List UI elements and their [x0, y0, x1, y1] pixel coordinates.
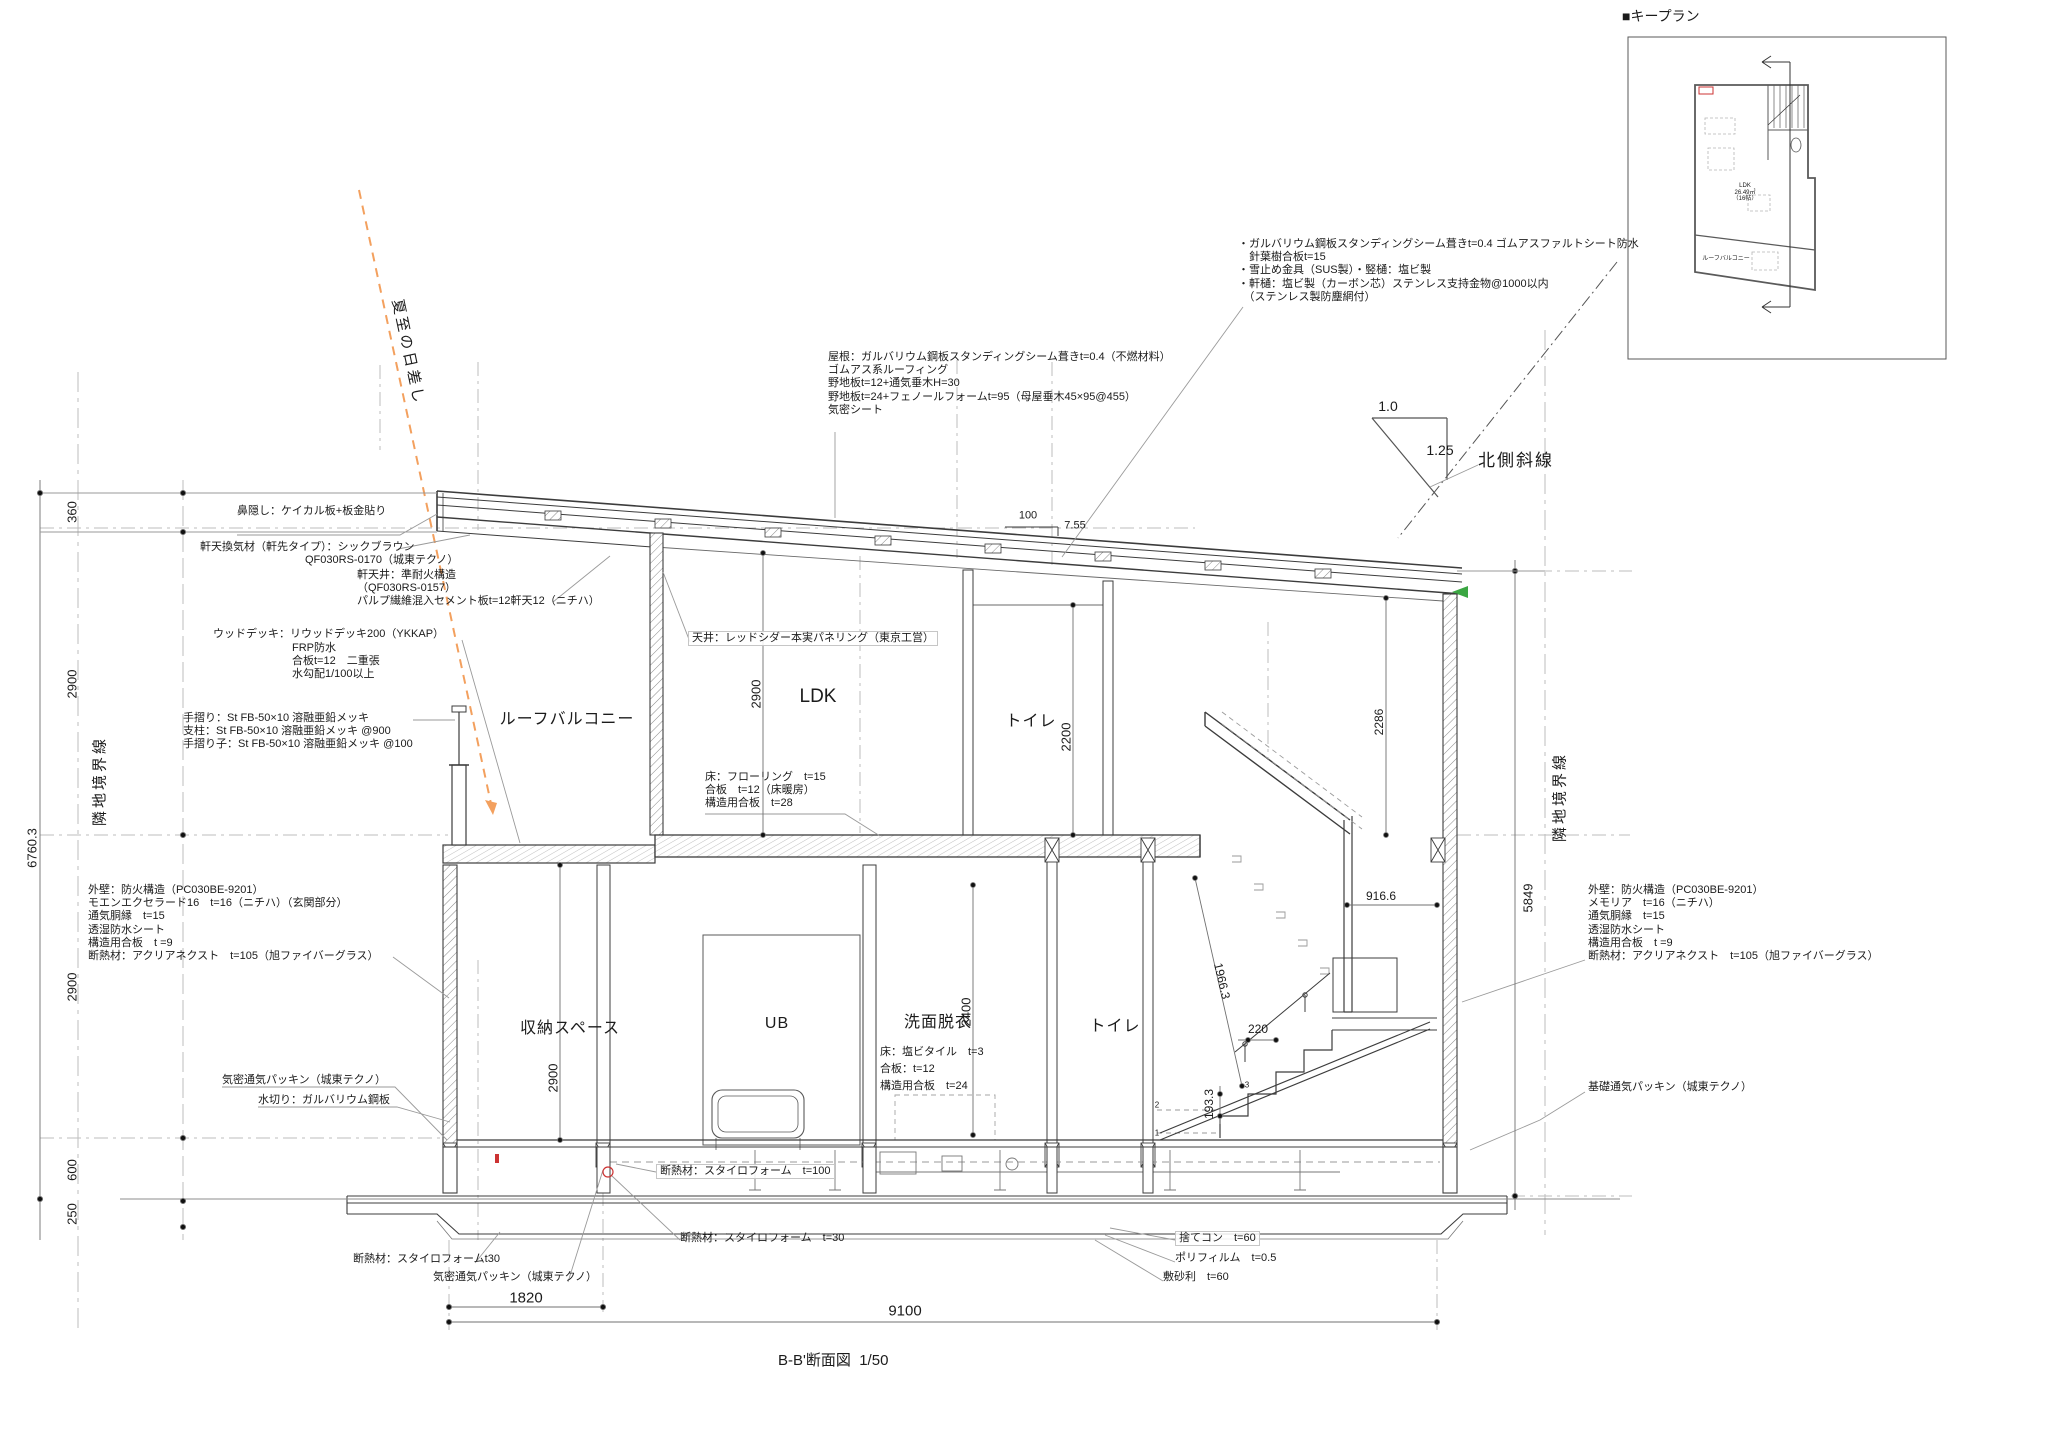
note-packing-lower: 気密通気パッキン（城東テクノ）: [433, 1271, 597, 1284]
step-number-2: 2: [1155, 1101, 1159, 1110]
dim-right-total: 5849: [1521, 884, 1536, 913]
dim-stair-rise: 193.3: [1202, 1089, 1216, 1119]
room-storage: 収納スペース: [520, 1014, 620, 1038]
slope-rise: 1.25: [1426, 442, 1453, 458]
note-foundation-packing: 基礎通気パッキン（城東テクノ）: [1588, 1081, 1752, 1094]
note-wood-deck-head: ウッドデッキ：リウッドデッキ200（YKKAP）: [213, 628, 444, 641]
foundation: [347, 1147, 1507, 1239]
roof-run: 100: [1019, 509, 1037, 522]
drawing-scale: 1/50: [859, 1352, 888, 1369]
note-floor-wet: 床：塩ビタイル t=3 合板：t=12 構造用合板 t=24: [880, 1044, 984, 1095]
note-fascia: 鼻隠し：ケイカル板+板金貼り: [237, 505, 386, 518]
dim-fascia: 360: [65, 501, 80, 523]
note-eave-soffit: 軒天井：準耐火構造 （QF030RS-0157） パルプ繊維混入セメント板t=1…: [357, 569, 600, 609]
step-number-1: 1: [1155, 1129, 1159, 1138]
dim-landing: 916.6: [1366, 889, 1396, 903]
note-wall-left: 外壁：防火構造（PC030BE-9201） モエンエクセラード16 t=16（ニ…: [88, 884, 379, 963]
note-insul-floor: 断熱材：スタイロフォーム t=100: [656, 1164, 835, 1179]
boundary-right-label: 隣地境界線: [1549, 752, 1570, 842]
dim-stair-run: 220: [1248, 1022, 1268, 1036]
keyplan-ldk-label: LDK 26.49㎡ （16帖）: [1733, 183, 1758, 203]
note-eaves-gutter: ・ガルバリウム鋼板スタンディングシーム葺きt=0.4 ゴムアスファルトシート防水…: [1238, 238, 1639, 304]
keyplan-balcony-label: ルーフバルコニー: [1702, 256, 1750, 263]
note-handrail: 手摺り：St FB-50×10 溶融亜鉛メッキ 支柱：St FB-50×10 溶…: [183, 712, 413, 752]
dim-left-total: 6760.3: [25, 828, 40, 868]
note-insul-slab: 断熱材：スタイロフォーム t=30: [680, 1232, 844, 1245]
note-ceiling: 天井：レッドシダー本実パネリング（東京工営）: [688, 631, 938, 646]
keyplan-title: ■キープラン: [1622, 6, 1700, 26]
leader-lines: [222, 307, 1585, 1282]
room-toilet-2f: トイレ: [1005, 707, 1056, 731]
section-drawing-sheet: ■キープラン B-B'断面図 1/50 LDK 26.49㎡ （16帖） ルーフ…: [0, 0, 2060, 1436]
note-wood-deck-sub: FRP防水 合板t=12 二重張 水勾配1/100以上: [292, 642, 380, 682]
stairs: [1157, 712, 1437, 1140]
drawing-title: B-B'断面図 1/50: [778, 1332, 888, 1370]
slope-run: 1.0: [1378, 398, 1397, 414]
note-flashing: 水切り：ガルバリウム鋼板: [258, 1094, 390, 1107]
note-poly-film: ポリフィルム t=0.5: [1175, 1252, 1276, 1265]
room-toilet-1f: トイレ: [1089, 1012, 1140, 1036]
note-g ravel: 敷砂利 t=60: [1163, 1271, 1229, 1284]
room-ub: UB: [765, 1015, 789, 1033]
room-roof-balcony: ルーフバルコニー: [500, 705, 635, 729]
note-eave-vent-1: 軒天換気材（軒先タイプ）：シックブラウン: [200, 541, 415, 554]
dim-ldk-ceiling: 2900: [749, 680, 764, 709]
dim-plinth: 600: [65, 1159, 80, 1181]
dim-storage-height: 2900: [546, 1064, 561, 1093]
dim-entrance-width: 1820: [509, 1290, 542, 1307]
dim-washroom-height: 2400: [959, 998, 974, 1027]
note-lean-concrete: 捨てコン t=60: [1175, 1231, 1260, 1246]
note-roof-spec: 屋根：ガルバリウム鋼板スタンディングシーム葺きt=0.4（不燃材料） ゴムアス系…: [828, 351, 1171, 417]
note-wall-right: 外壁：防火構造（PC030BE-9201） メモリア t=16（ニチハ） 通気胴…: [1588, 884, 1879, 963]
note-insul-t30: 断熱材：スタイロフォームt30: [353, 1253, 500, 1266]
ub-unit: [703, 935, 995, 1150]
step-number-3: 3: [1245, 1081, 1249, 1090]
note-packing-upper: 気密通気パッキン（城東テクノ）: [222, 1074, 386, 1087]
dim-toilet-ceiling: 2200: [1059, 723, 1074, 752]
note-floor-ldk: 床：フローリング t=15 合板 t=12（床暖房） 構造用合板 t=28: [705, 771, 826, 811]
dim-2f-height: 2900: [65, 670, 80, 699]
grid-lines: [40, 330, 1632, 1330]
north-slope-label: 北側斜線: [1478, 446, 1554, 471]
room-ldk: LDK: [800, 686, 837, 708]
dim-total-width: 9100: [888, 1303, 921, 1320]
roof-pitch: 7.55: [1064, 519, 1085, 532]
keyplan-drawing: [1628, 37, 1946, 359]
drawing-title-name: B-B'断面図: [778, 1352, 851, 1369]
note-eave-vent-2: QF030RS-0170（城東テクノ）: [305, 554, 458, 567]
boundary-left-label: 隣地境界線: [89, 736, 110, 826]
dim-footing: 250: [65, 1203, 80, 1225]
dim-right-upper: 2286: [1372, 709, 1386, 736]
dim-1f-height: 2900: [65, 973, 80, 1002]
floor-2f: [655, 835, 1200, 857]
revision-marks: [495, 1154, 613, 1177]
